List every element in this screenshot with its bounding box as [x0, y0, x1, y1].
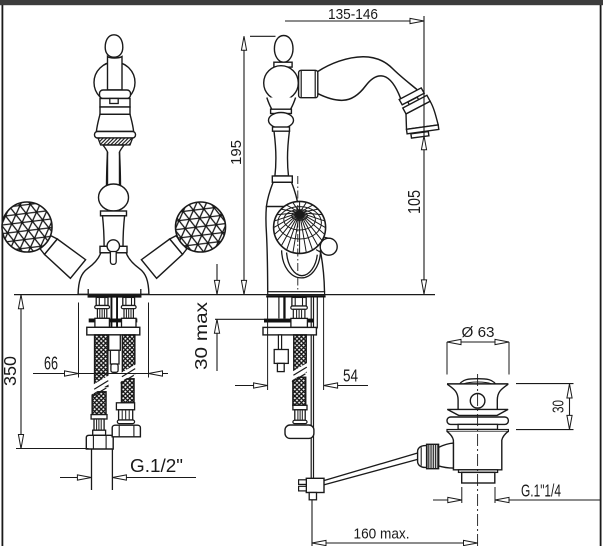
svg-text:30 max: 30 max	[191, 302, 211, 370]
svg-text:G.1/2": G.1/2"	[130, 456, 183, 476]
svg-text:Ø 63: Ø 63	[462, 324, 495, 341]
svg-text:135-146: 135-146	[328, 6, 378, 23]
svg-text:54: 54	[343, 366, 358, 386]
svg-text:30: 30	[550, 400, 567, 413]
svg-text:160 max.: 160 max.	[354, 525, 410, 542]
svg-text:195: 195	[228, 140, 245, 165]
svg-text:66: 66	[44, 354, 58, 374]
svg-text:G.1"1/4: G.1"1/4	[521, 481, 561, 501]
svg-text:350: 350	[0, 356, 20, 386]
svg-text:105: 105	[404, 190, 424, 214]
